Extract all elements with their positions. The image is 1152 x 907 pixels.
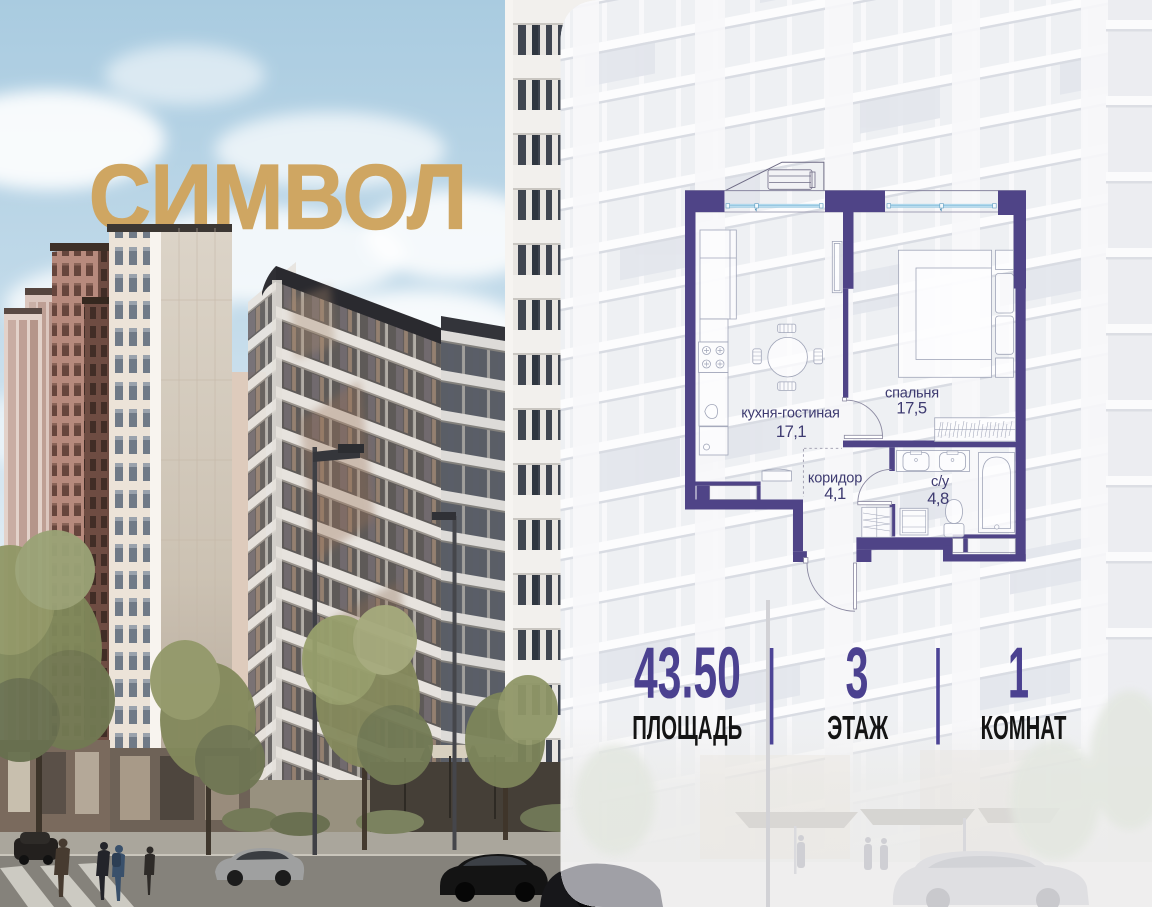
svg-text:ПЛОЩАДЬ: ПЛОЩАДЬ [632,709,742,746]
svg-text:ЭТАЖ: ЭТАЖ [827,709,888,746]
svg-text:43.50: 43.50 [634,632,741,713]
svg-text:КОМНАТ: КОМНАТ [981,709,1067,746]
svg-text:1: 1 [1008,632,1029,713]
svg-text:с/у: с/у [931,474,950,490]
svg-text:17,1: 17,1 [776,422,807,441]
svg-text:17,5: 17,5 [896,399,927,418]
svg-text:кухня-гостиная: кухня-гостиная [741,406,840,422]
svg-text:4,1: 4,1 [824,484,846,503]
svg-text:3: 3 [846,632,869,713]
svg-text:4,8: 4,8 [927,489,949,508]
